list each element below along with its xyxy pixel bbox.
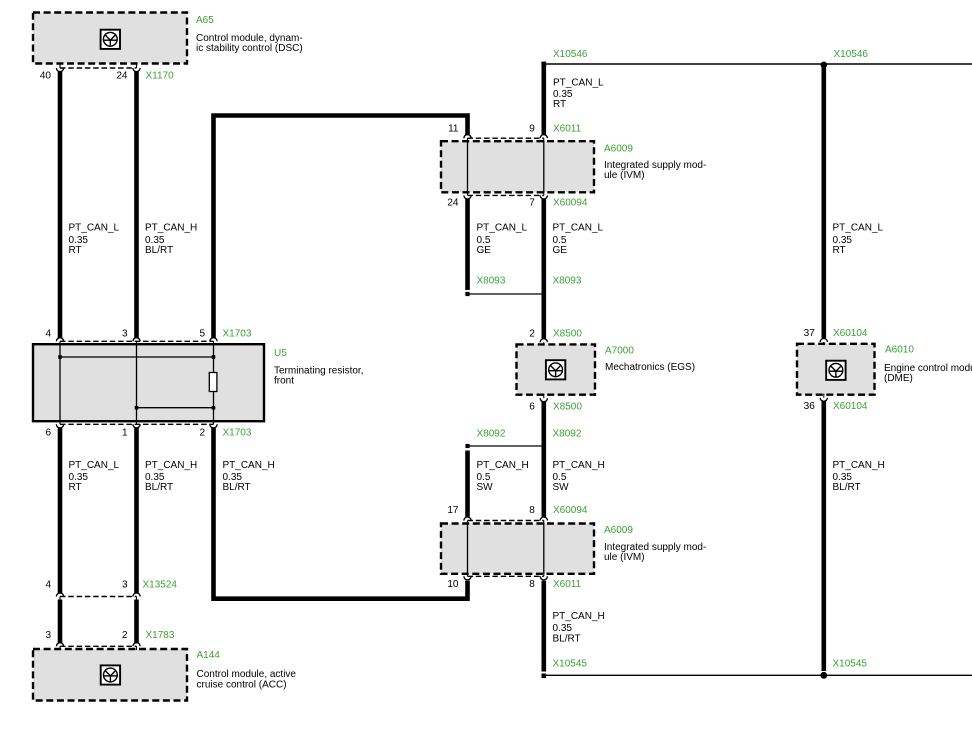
- svg-text:X6011: X6011: [553, 579, 582, 590]
- svg-text:PT_CAN_H: PT_CAN_H: [145, 223, 197, 234]
- svg-text:X10546: X10546: [553, 49, 588, 60]
- svg-text:RT: RT: [69, 482, 82, 493]
- svg-text:PT_CAN_H: PT_CAN_H: [223, 460, 275, 471]
- svg-text:A7000: A7000: [605, 346, 634, 357]
- svg-text:A65: A65: [196, 15, 214, 26]
- svg-text:2: 2: [529, 328, 535, 339]
- svg-text:X8500: X8500: [553, 328, 582, 339]
- svg-text:X1170: X1170: [146, 71, 175, 82]
- svg-text:6: 6: [45, 428, 51, 439]
- svg-text:X60094: X60094: [553, 198, 588, 209]
- svg-text:ule (IVM): ule (IVM): [604, 552, 645, 563]
- svg-text:Control module, active: Control module, active: [197, 669, 297, 680]
- svg-text:24: 24: [116, 71, 128, 82]
- svg-text:8: 8: [529, 505, 535, 516]
- svg-text:0.35: 0.35: [553, 623, 573, 634]
- svg-text:PT_CAN_L: PT_CAN_L: [477, 223, 528, 234]
- svg-text:front: front: [274, 376, 294, 387]
- svg-text:17: 17: [447, 505, 459, 516]
- svg-text:4: 4: [45, 580, 51, 591]
- svg-text:36: 36: [804, 401, 816, 412]
- svg-text:SW: SW: [477, 482, 494, 493]
- svg-text:11: 11: [448, 124, 459, 135]
- svg-text:2: 2: [199, 428, 205, 439]
- svg-text:X1703: X1703: [223, 328, 252, 339]
- svg-text:9: 9: [529, 124, 535, 135]
- svg-text:PT_CAN_L: PT_CAN_L: [833, 223, 884, 234]
- svg-text:24: 24: [447, 198, 459, 209]
- svg-text:8: 8: [529, 579, 535, 590]
- svg-text:X10545: X10545: [833, 659, 868, 670]
- svg-text:PT_CAN_L: PT_CAN_L: [553, 223, 604, 234]
- svg-text:GE: GE: [477, 245, 492, 256]
- svg-text:3: 3: [45, 630, 51, 641]
- svg-text:BL/RT: BL/RT: [223, 482, 251, 493]
- svg-text:37: 37: [804, 328, 816, 339]
- svg-text:RT: RT: [833, 245, 846, 256]
- svg-text:X8093: X8093: [477, 276, 506, 287]
- svg-text:Mechatronics (EGS): Mechatronics (EGS): [605, 362, 695, 373]
- svg-text:RT: RT: [69, 245, 82, 256]
- svg-text:U5: U5: [274, 348, 287, 359]
- svg-text:(DME): (DME): [884, 373, 913, 384]
- svg-text:6: 6: [529, 402, 535, 413]
- svg-text:PT_CAN_H: PT_CAN_H: [477, 460, 529, 471]
- svg-text:X6011: X6011: [553, 124, 582, 135]
- svg-text:X1783: X1783: [146, 630, 175, 641]
- svg-text:X8092: X8092: [477, 429, 506, 440]
- svg-text:PT_CAN_H: PT_CAN_H: [553, 460, 605, 471]
- svg-text:ic stability control (DSC): ic stability control (DSC): [196, 43, 303, 54]
- svg-text:PT_CAN_L: PT_CAN_L: [553, 78, 604, 89]
- svg-text:X60104: X60104: [833, 328, 868, 339]
- svg-text:PT_CAN_L: PT_CAN_L: [69, 223, 120, 234]
- svg-text:ule (IVM): ule (IVM): [604, 170, 645, 181]
- svg-text:PT_CAN_H: PT_CAN_H: [145, 460, 197, 471]
- svg-text:X1703: X1703: [223, 428, 252, 439]
- svg-text:BL/RT: BL/RT: [553, 634, 581, 645]
- svg-text:40: 40: [40, 71, 52, 82]
- svg-text:X8500: X8500: [553, 402, 582, 413]
- svg-text:X13524: X13524: [143, 580, 178, 591]
- svg-text:A144: A144: [197, 650, 221, 661]
- svg-text:X60094: X60094: [553, 505, 588, 516]
- svg-text:X8093: X8093: [553, 276, 582, 287]
- svg-text:X60104: X60104: [833, 401, 868, 412]
- svg-text:PT_CAN_H: PT_CAN_H: [553, 611, 605, 622]
- svg-text:3: 3: [122, 580, 128, 591]
- svg-text:7: 7: [529, 198, 535, 209]
- svg-text:SW: SW: [553, 482, 570, 493]
- svg-text:BL/RT: BL/RT: [833, 482, 861, 493]
- svg-text:X10546: X10546: [834, 49, 869, 60]
- svg-text:A6010: A6010: [885, 345, 914, 356]
- svg-text:X10545: X10545: [553, 659, 588, 670]
- svg-text:RT: RT: [553, 99, 566, 110]
- svg-text:A6009: A6009: [604, 525, 633, 536]
- svg-text:10: 10: [447, 579, 459, 590]
- svg-text:1: 1: [122, 428, 128, 439]
- svg-text:GE: GE: [553, 245, 568, 256]
- svg-text:2: 2: [122, 630, 128, 641]
- svg-text:PT_CAN_H: PT_CAN_H: [833, 460, 885, 471]
- svg-text:X8092: X8092: [553, 429, 582, 440]
- svg-text:3: 3: [122, 328, 128, 339]
- svg-text:A6009: A6009: [604, 143, 633, 154]
- svg-text:BL/RT: BL/RT: [145, 245, 173, 256]
- svg-text:BL/RT: BL/RT: [145, 482, 173, 493]
- svg-text:PT_CAN_L: PT_CAN_L: [69, 460, 120, 471]
- svg-text:cruise control (ACC): cruise control (ACC): [197, 680, 287, 691]
- svg-text:5: 5: [199, 328, 205, 339]
- svg-text:4: 4: [45, 328, 51, 339]
